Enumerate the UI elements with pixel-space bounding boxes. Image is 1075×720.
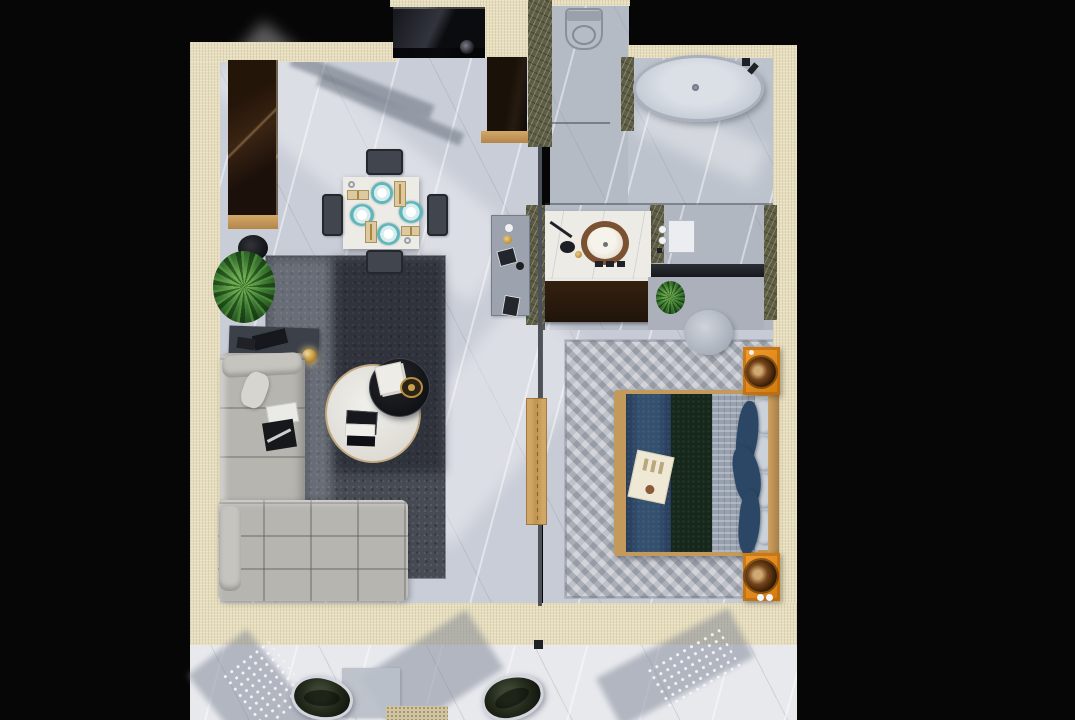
tall-cabinet-base [481, 131, 528, 143]
napkin-cutlery-2 [347, 190, 369, 200]
wall-line-bedroom-lower [538, 522, 542, 606]
vanity-soap-2 [606, 261, 614, 267]
nightstand-lamp-top [746, 357, 776, 387]
marble-partition-bathtub [621, 57, 634, 131]
table-ring-1 [348, 181, 355, 188]
wardrobe [228, 60, 278, 217]
plate-bottom [377, 223, 400, 245]
bedroom-door [526, 398, 547, 525]
vanity-item-gold [575, 251, 582, 258]
wall-top-kitchen-sliver [390, 0, 487, 7]
vanity-cabinet [545, 279, 651, 322]
marble-wall-right-a [764, 205, 777, 263]
tray-gold [400, 377, 423, 398]
balcony-mat [386, 706, 448, 720]
floor-plan-canvas [0, 0, 1075, 720]
wardrobe-base [228, 215, 278, 229]
shower-screen-line [548, 122, 610, 124]
wall-entry-block [483, 0, 530, 58]
bath-faucet-1 [742, 58, 750, 66]
vanity-basin [581, 221, 629, 265]
kitchen-faucet [460, 40, 474, 54]
napkin-cutlery-1 [394, 181, 406, 207]
sofa-armrest-left [219, 506, 241, 591]
nightstand-lamp-bottom [745, 560, 777, 592]
wall-top-living [190, 42, 397, 62]
bed-blanket-green [671, 394, 712, 552]
vanity-tray-dark [560, 241, 575, 253]
dining-chair-left [322, 194, 343, 236]
nightstand-dot-2 [766, 594, 773, 601]
wall-top-toilet-sliver [545, 0, 630, 6]
table-ring-2 [404, 237, 411, 244]
closet-counter [651, 264, 764, 277]
nightstand-dot-1 [757, 594, 764, 601]
potted-plant-bedroom [656, 281, 685, 314]
utility-fixture-1 [659, 226, 666, 233]
wall-line-bedroom-upper [538, 145, 542, 401]
utility-fixture-3 [657, 248, 662, 253]
dining-chair-right [427, 194, 448, 236]
desk-card [501, 295, 520, 317]
washing-machine [668, 220, 695, 253]
dining-chair-top [366, 149, 403, 175]
marble-partition-utility [650, 205, 664, 263]
marble-wall-right-b [764, 263, 777, 320]
nightstand-dot-top [749, 350, 754, 355]
utility-fixture-2 [659, 237, 666, 244]
vanity-soap-3 [617, 261, 625, 267]
bathtub-drain [692, 84, 699, 91]
napkin-cutlery-3 [365, 221, 377, 243]
potted-plant-living [213, 251, 275, 323]
sofa-chaise [218, 500, 408, 601]
napkin-cutlery-4 [401, 226, 420, 236]
pouf [684, 310, 733, 355]
marble-wall-entry [528, 0, 552, 147]
desk-item-gold [503, 235, 512, 244]
wall-hook [534, 640, 543, 649]
dining-chair-bottom [366, 250, 403, 274]
plate-top [371, 182, 393, 204]
desk-item-round-2 [516, 262, 524, 270]
wall-left [190, 42, 220, 645]
vanity-soap-1 [595, 261, 603, 267]
tall-cabinet [487, 57, 527, 133]
remote-on-table [347, 436, 375, 447]
toilet [565, 8, 603, 50]
console-item-small [236, 337, 255, 350]
desk-item-round-1 [505, 224, 513, 232]
headboard [768, 390, 779, 556]
magazine-stack-black [262, 419, 297, 452]
